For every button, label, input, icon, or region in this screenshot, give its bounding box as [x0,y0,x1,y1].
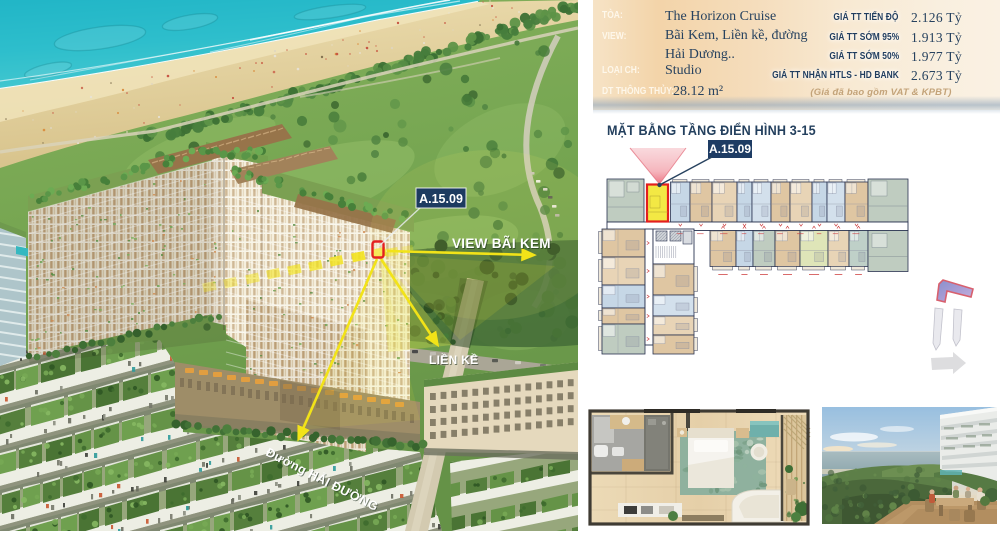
svg-text:VIEW BÃI KEM: VIEW BÃI KEM [452,236,551,251]
svg-text:LIỀN KỀ: LIỀN KỀ [429,352,478,367]
svg-text:A.15.09: A.15.09 [419,192,463,206]
